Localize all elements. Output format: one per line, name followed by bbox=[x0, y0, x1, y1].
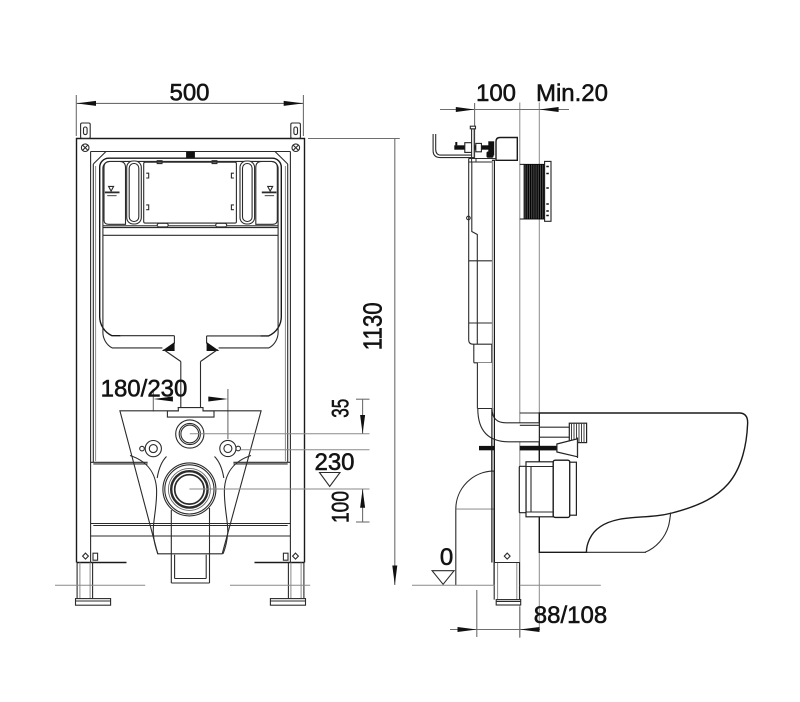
svg-text:0: 0 bbox=[440, 544, 453, 571]
svg-text:100: 100 bbox=[476, 80, 516, 107]
svg-text:500: 500 bbox=[169, 80, 209, 107]
svg-text:88/108: 88/108 bbox=[534, 602, 607, 629]
svg-text:1130: 1130 bbox=[358, 302, 388, 350]
svg-text:100: 100 bbox=[327, 491, 354, 523]
svg-text:35: 35 bbox=[327, 399, 354, 418]
svg-text:180/230: 180/230 bbox=[101, 376, 188, 403]
svg-text:Min.20: Min.20 bbox=[536, 80, 608, 107]
